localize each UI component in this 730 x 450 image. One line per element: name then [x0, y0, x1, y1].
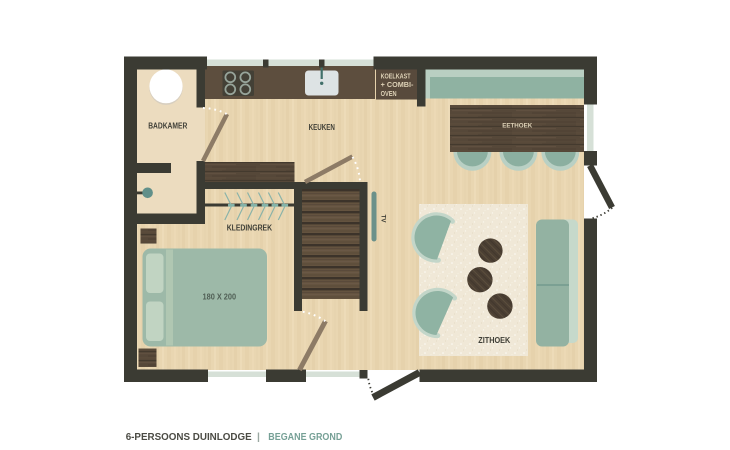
svg-text:KOELKAST: KOELKAST [381, 74, 412, 81]
svg-text:EETHOEK: EETHOEK [502, 123, 532, 130]
svg-text:6-PERSOONS DUINLODGE: 6-PERSOONS DUINLODGE [126, 431, 252, 443]
svg-text:BADKAMER: BADKAMER [148, 121, 187, 130]
svg-text:180 X 200: 180 X 200 [203, 293, 237, 302]
svg-text:KEUKEN: KEUKEN [309, 123, 335, 132]
svg-text:BEGANE GROND: BEGANE GROND [268, 431, 342, 443]
svg-text:KLEDINGREK: KLEDINGREK [227, 224, 273, 233]
svg-text:|: | [257, 431, 260, 443]
svg-text:TV: TV [380, 215, 387, 224]
svg-text:+ COMBI-: + COMBI- [381, 82, 414, 89]
svg-text:ZITHOEK: ZITHOEK [478, 336, 510, 345]
svg-text:OVEN: OVEN [381, 91, 397, 98]
